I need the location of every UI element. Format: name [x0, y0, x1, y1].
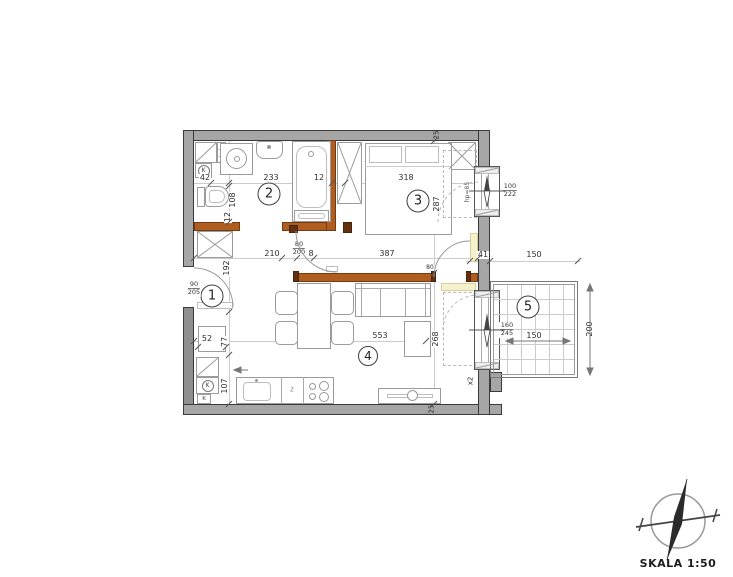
dim-287: 287 — [433, 195, 441, 212]
dim-387: 387 — [378, 250, 395, 258]
dining-table — [297, 283, 331, 349]
door-leaf-bedroom — [343, 222, 352, 233]
stove-burner — [319, 392, 329, 402]
room-circle-3: 3 — [407, 190, 430, 213]
sofa-armrest — [361, 284, 362, 316]
dim-balcony-door-height: 245 — [500, 331, 514, 338]
dim-107: 107 — [221, 377, 229, 394]
dim-12-side: 12 — [224, 211, 232, 223]
pillow — [405, 146, 439, 163]
dim-entry-door: 90 205 — [187, 281, 201, 297]
window-end-block — [475, 209, 499, 216]
dim-268: 268 — [432, 330, 440, 347]
bed-headline — [365, 166, 452, 167]
dim-window-height: 222 — [503, 192, 517, 199]
floor-plan: K K K z — [0, 0, 733, 577]
tv-mount — [407, 390, 418, 401]
dishwasher-mark: z — [289, 387, 295, 394]
sofa-back-line — [356, 288, 430, 289]
dim-door-80: 80 — [425, 265, 435, 271]
washbasin — [256, 141, 283, 159]
stove-burner — [309, 383, 316, 390]
dim-window: 100 222 — [502, 183, 518, 199]
dim-entry-door-height: 205 — [188, 290, 200, 297]
k-box-kitchen: K — [196, 377, 219, 394]
chair — [275, 321, 298, 345]
k-glyph: K — [202, 380, 214, 392]
dim-line-corridor — [194, 258, 478, 259]
dim-42: 42 — [199, 174, 211, 182]
dim-77: 77 — [221, 336, 229, 348]
door-swing-zone-window — [443, 150, 477, 218]
dim-192: 192 — [223, 259, 231, 276]
dim-balcony-door: 160 245 — [499, 322, 515, 338]
window-end-block — [475, 167, 499, 174]
room-circle-5: 5 — [517, 296, 540, 319]
room-circle-2: 2 — [258, 183, 281, 206]
dim-200: 200 — [586, 320, 594, 337]
bathtub-drain — [308, 151, 314, 157]
dim-150-balcony: 150 — [525, 332, 542, 340]
dim-8: 8 — [307, 250, 314, 258]
cabinet-slash-bathroom — [195, 142, 217, 163]
wall-left-lower — [183, 307, 194, 415]
dim-52: 52 — [201, 335, 213, 343]
partition-endcap — [466, 271, 471, 282]
radiator-living — [441, 283, 476, 291]
dim-12-top: 12 — [313, 174, 325, 182]
washer-drum-center — [234, 156, 240, 162]
threshold — [326, 266, 338, 272]
window-rail — [481, 292, 482, 368]
dim-150-top: 150 — [525, 251, 542, 259]
bath-step-mat — [298, 213, 325, 219]
scale-label: SKALA 1:50 — [638, 557, 718, 570]
dim-318: 318 — [397, 174, 414, 182]
kitchen-sink — [243, 382, 271, 401]
wall-left-upper — [183, 130, 194, 267]
toilet-bowl-inner — [209, 190, 225, 203]
wall-bottom — [183, 404, 502, 415]
k-glyph: K — [202, 396, 206, 402]
window-rail — [488, 168, 489, 215]
dim-210: 210 — [263, 250, 280, 258]
door-swing-zone-balcony — [443, 292, 477, 366]
partition-living-long — [297, 273, 434, 282]
dim-233: 233 — [262, 174, 279, 182]
dim-108: 108 — [229, 191, 237, 208]
dim-bath-door: 80 200 — [292, 241, 306, 257]
sofa-divider — [380, 289, 381, 316]
counter-divider — [303, 377, 304, 404]
fridge — [196, 357, 219, 377]
dim-x2: x2 — [468, 376, 475, 387]
compass — [636, 479, 720, 560]
chair — [331, 291, 354, 315]
dim-parapet: hp=85 — [465, 181, 471, 203]
dim-25-top: 25 — [434, 130, 441, 141]
dim-553: 553 — [371, 332, 388, 340]
k-box-small: K — [197, 394, 211, 404]
chair — [275, 291, 298, 315]
room-circle-1: 1 — [201, 285, 224, 308]
wall-top — [183, 130, 490, 141]
kitchen-faucet-dot — [255, 379, 258, 382]
counter-divider — [281, 377, 282, 404]
door-leaf-bathroom — [289, 225, 298, 233]
coffee-table — [404, 321, 431, 357]
partition-living-right — [470, 273, 478, 282]
dim-41: 41 — [477, 251, 489, 259]
faucet-dot — [267, 145, 271, 149]
window-rail — [481, 168, 482, 215]
wall-right-top — [478, 130, 490, 168]
stove-burner — [309, 393, 316, 400]
toilet-tank — [197, 187, 205, 207]
stove-burner — [319, 381, 329, 391]
chair — [331, 321, 354, 345]
wardrobe-bedroom-left — [337, 142, 362, 204]
window-rail — [488, 292, 489, 368]
wall-right-bottom — [478, 368, 490, 415]
sofa-armrest — [425, 284, 426, 316]
room-circle-4: 4 — [358, 346, 378, 366]
dim-25-bottom: 25 — [429, 404, 436, 415]
sofa-divider — [405, 289, 406, 316]
wardrobe-hall — [197, 231, 233, 258]
pillow — [369, 146, 402, 163]
partition-bath-left — [194, 222, 240, 231]
partition-endcap — [293, 271, 299, 282]
partition-endcap — [431, 271, 436, 282]
dim-bath-door-height: 200 — [293, 250, 305, 257]
